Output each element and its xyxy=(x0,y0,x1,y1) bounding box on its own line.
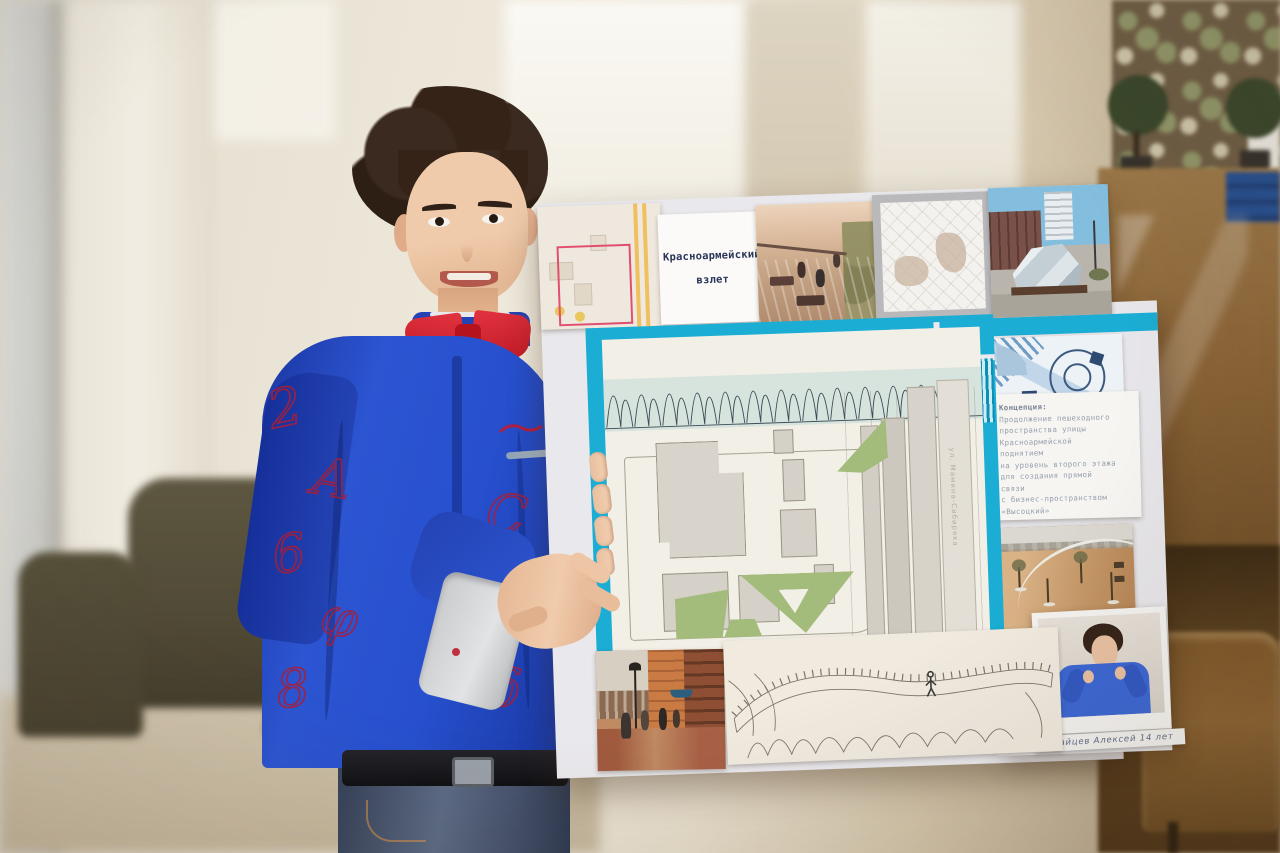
photo-awning xyxy=(670,689,692,697)
plan-paper: ул. Мамина-Сибиряка xyxy=(602,327,991,658)
map-road-stripe xyxy=(633,204,641,327)
photo-bench-dark xyxy=(1114,562,1124,568)
shirt-doodle: A xyxy=(305,446,356,512)
poster-title-line1: Красноармейский xyxy=(663,248,761,263)
poster-board: Красноармейский взлет xyxy=(537,182,1179,778)
shirt-doodle: 2 xyxy=(262,376,308,442)
photo-pavilion-base xyxy=(1011,285,1087,296)
photo-deck-lines xyxy=(757,256,881,323)
photo-bench xyxy=(796,295,824,306)
highline-park-photo xyxy=(755,201,881,323)
window-right-top xyxy=(865,0,1020,200)
photo-lamp xyxy=(1093,221,1097,271)
jeans-pocket-stitch xyxy=(366,800,426,842)
belt-buckle xyxy=(452,757,494,787)
city-square-photo xyxy=(988,184,1112,318)
photo-tower xyxy=(1044,191,1074,240)
pencil-plan-paper xyxy=(880,199,986,311)
photo-lamp-head xyxy=(629,662,641,670)
photo-person xyxy=(641,710,649,730)
photo-person xyxy=(797,262,806,278)
plan-building xyxy=(780,508,818,557)
boy-eye-left-iris xyxy=(435,217,444,226)
finger xyxy=(593,515,615,547)
topiary-plant-right xyxy=(1226,78,1280,138)
photo-pavement xyxy=(597,727,726,771)
boy-eye-right-iris xyxy=(489,214,498,223)
concept-card: Концепция: Продолжение пешеходного прост… xyxy=(989,391,1142,521)
photo-person xyxy=(621,713,631,739)
walkway-sketch xyxy=(723,627,1063,765)
armchair-leg xyxy=(1168,822,1178,853)
pedestrian-street-photo xyxy=(596,649,726,771)
photo-scene: 2 A 6 φ 8 C 9 δ xyxy=(0,0,1280,853)
walkway-sketch-drawing xyxy=(723,627,1063,765)
photo-person xyxy=(659,708,667,730)
cuff-button xyxy=(452,648,460,656)
chest-red-squiggle xyxy=(500,426,542,432)
plan-building xyxy=(773,429,794,454)
master-plan: ул. Мамина-Сибиряка xyxy=(585,314,1005,674)
pencil-plan-card xyxy=(872,191,994,320)
photo-railing xyxy=(757,243,847,255)
shirt-doodle: 8 xyxy=(273,658,312,721)
boy-nose xyxy=(461,232,473,262)
olive-chair-far-left xyxy=(18,552,143,737)
map-road-stripe xyxy=(642,203,650,326)
photo-bench-dark xyxy=(1114,576,1124,582)
window-bright-top xyxy=(215,0,335,140)
photo-person xyxy=(673,710,680,728)
poster-title-line2: взлет xyxy=(696,273,729,286)
shirt-doodle: φ xyxy=(315,585,365,652)
boy-teeth xyxy=(447,273,491,280)
photo-bench xyxy=(770,276,794,286)
topiary-plant-left xyxy=(1108,75,1168,135)
plan-building xyxy=(782,459,805,502)
photo-person xyxy=(815,269,825,287)
site-map-card xyxy=(537,203,664,330)
title-card: Красноармейский взлет xyxy=(657,211,767,325)
shirt-doodle: 6 xyxy=(268,522,309,586)
finger xyxy=(591,483,613,515)
photo-bush xyxy=(1089,268,1109,281)
map-site-outline xyxy=(556,244,633,327)
